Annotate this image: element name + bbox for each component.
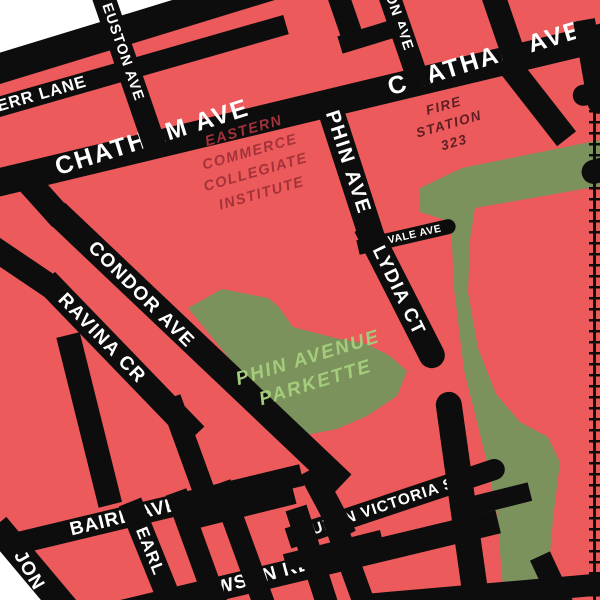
neighbourhood-map-poster: ERR LANECHATHAM AVECHATHAM AVEOAKVALE AV… <box>0 0 600 600</box>
